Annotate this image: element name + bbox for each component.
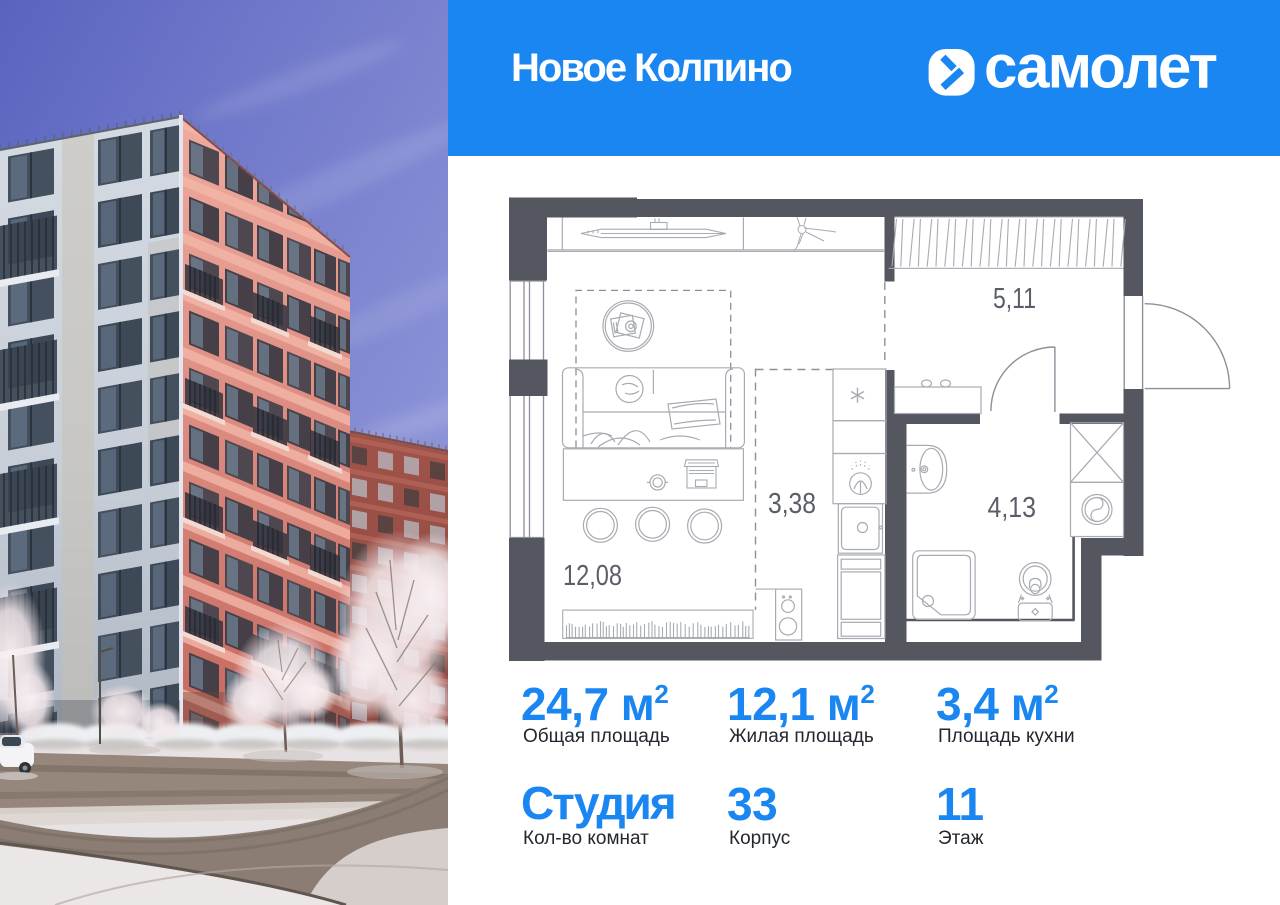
svg-text:4,13: 4,13: [988, 492, 1037, 524]
svg-text:5,11: 5,11: [993, 283, 1036, 315]
svg-text:12,08: 12,08: [563, 560, 622, 592]
svg-text:3,38: 3,38: [768, 488, 816, 520]
